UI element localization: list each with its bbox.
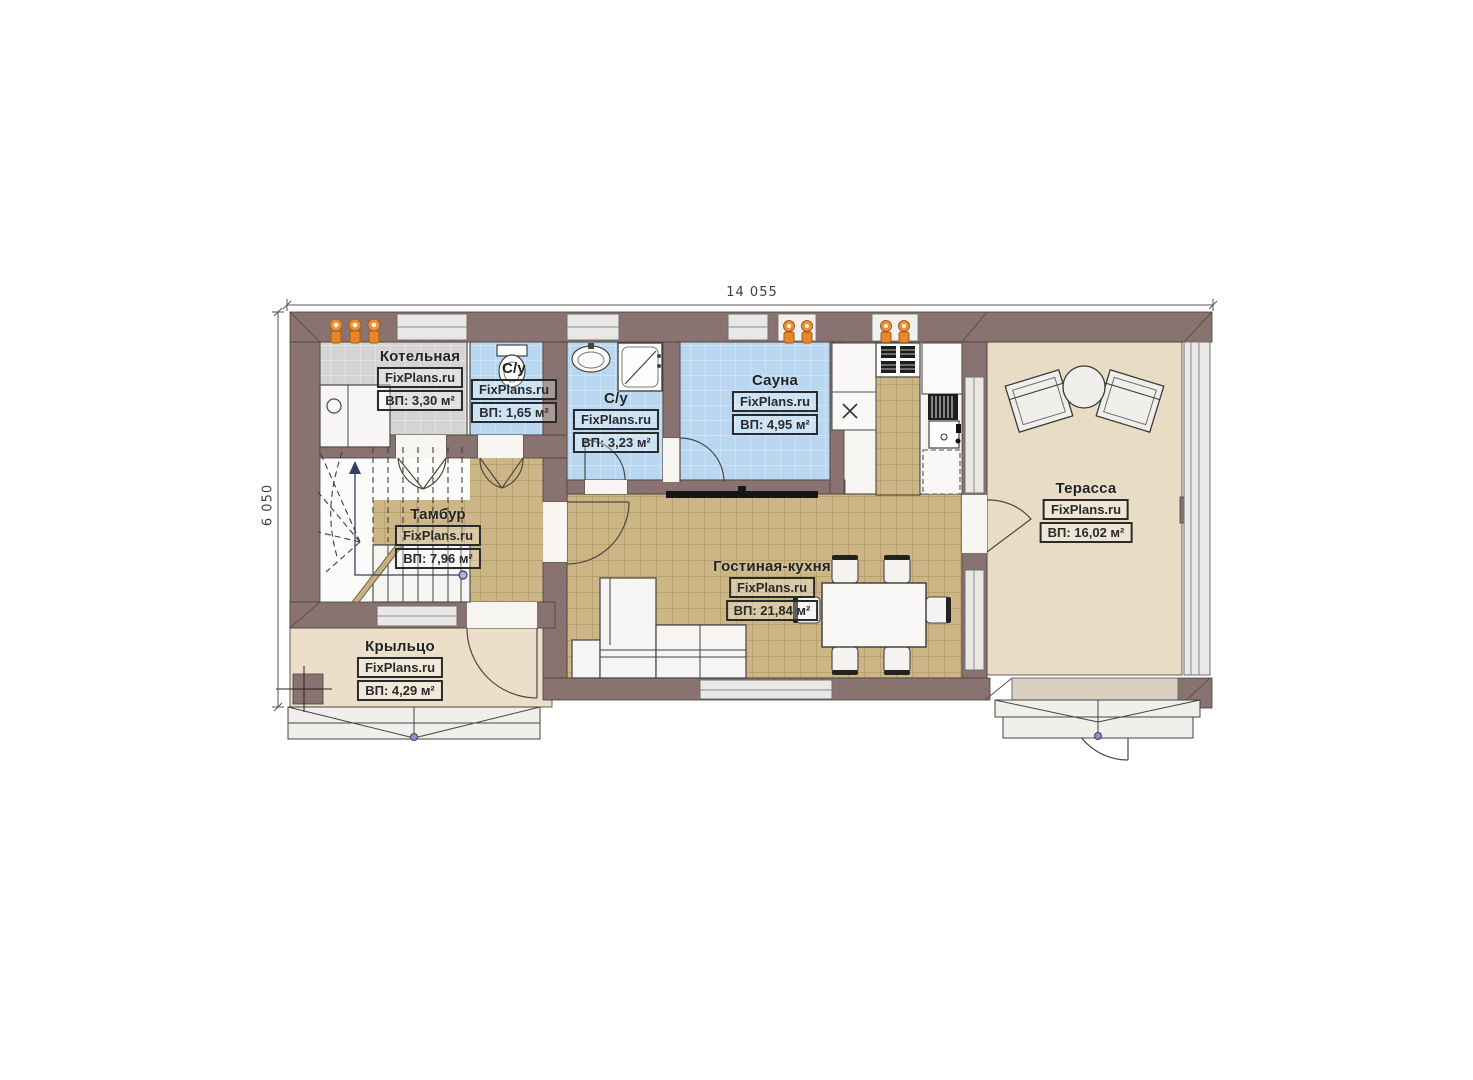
chair — [832, 647, 858, 673]
porch-floor — [290, 628, 552, 707]
wall-bathroom1-right — [543, 342, 567, 435]
wall-boiler-bottom-2 — [446, 435, 478, 458]
vestibule-corridor-floor — [470, 458, 543, 602]
door-gap-vestibule-living — [543, 502, 567, 562]
drying-rack — [928, 394, 958, 420]
door-gap-sauna — [663, 438, 680, 482]
floor-plan-drawing — [0, 0, 1473, 1080]
wall-boiler-bottom-3 — [523, 435, 567, 458]
door-gap-terrace — [962, 495, 987, 553]
chair — [884, 647, 910, 673]
toilet — [497, 345, 527, 387]
chair — [832, 557, 858, 583]
sauna-floor — [680, 342, 830, 480]
terrace-steps — [995, 700, 1200, 740]
kitchen-sink — [929, 421, 961, 448]
boiler-counter — [320, 385, 390, 447]
vent-niche-2 — [872, 314, 918, 341]
porch-steps — [288, 707, 540, 741]
kitchen-counter-right — [922, 343, 962, 394]
wall-vestibule-right-upper — [543, 458, 567, 502]
floor-plan-canvas: 14 055 6 050 Котельная FixPlans.ru ВП: 3… — [0, 0, 1473, 1080]
dining-table — [822, 583, 926, 647]
terrace-glazing — [1184, 342, 1210, 675]
door-gap-bathroom2 — [585, 480, 627, 494]
wall-bathroom2-bottom-1 — [567, 480, 585, 494]
chair — [796, 597, 820, 623]
stairs-start-dot — [459, 571, 467, 579]
door-gap-boiler — [396, 435, 446, 458]
kitchen-floor-tongue — [876, 377, 920, 495]
stove — [876, 343, 920, 377]
terrace-round-table — [1063, 366, 1105, 408]
terrace-bottom-step — [1012, 678, 1178, 700]
wall-left — [290, 342, 320, 628]
door-gap-entrance — [467, 602, 537, 628]
shower-cabin — [618, 343, 662, 391]
wall-bathroom2-sauna — [663, 342, 680, 438]
dishwasher — [923, 450, 960, 494]
boiler-units — [330, 319, 380, 343]
kitchen-counter-left — [832, 343, 876, 430]
door-gap-bathroom1 — [478, 435, 523, 458]
chair — [884, 557, 910, 583]
